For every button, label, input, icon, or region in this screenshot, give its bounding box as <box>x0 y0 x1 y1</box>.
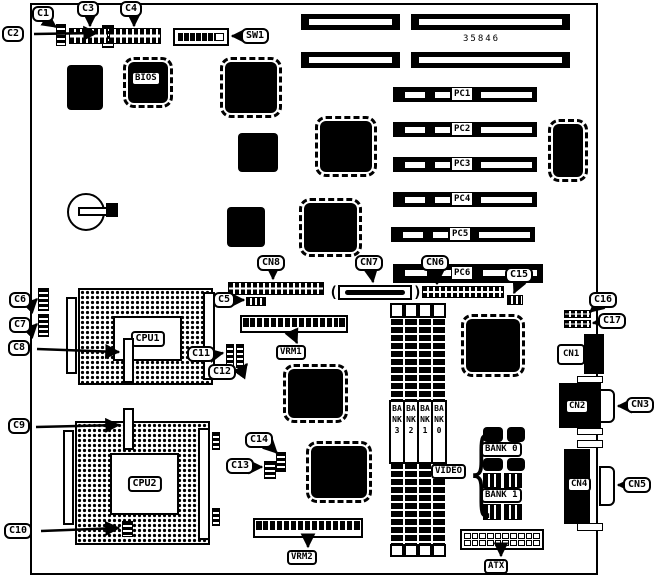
callout-c1: C1 <box>32 6 54 22</box>
motherboard-diagram: BIOS 35846 PC1 PC2 PC3 PC4 PC5 PC6 ( ) <box>0 0 658 579</box>
bank1-label: BANK 1 <box>481 488 522 503</box>
callout-c4: C4 <box>120 1 142 17</box>
callout-c9: C9 <box>8 418 30 434</box>
cn4-label: CN4 <box>567 477 591 492</box>
video-label: VIDEO <box>431 464 466 479</box>
callout-c15: C15 <box>505 267 533 283</box>
callout-c17: C17 <box>598 313 626 329</box>
vrm2-label: VRM2 <box>287 550 317 565</box>
cn1-label: CN1 <box>557 344 585 365</box>
callout-c16: C16 <box>589 292 617 308</box>
callout-cn7: CN7 <box>355 255 383 271</box>
callout-c8: C8 <box>8 340 30 356</box>
callout-sw1: SW1 <box>241 28 269 44</box>
callout-cn5: CN5 <box>623 477 651 493</box>
callout-c14: C14 <box>245 432 273 448</box>
callout-cn8: CN8 <box>257 255 285 271</box>
cn2-label: CN2 <box>565 399 589 414</box>
callout-c3: C3 <box>77 1 99 17</box>
callout-cn6: CN6 <box>421 255 449 271</box>
callout-c11: C11 <box>187 346 215 362</box>
callout-cn3: CN3 <box>626 397 654 413</box>
callout-c10: C10 <box>4 523 32 539</box>
callout-c13: C13 <box>226 458 254 474</box>
atx-label: ATX <box>484 559 508 574</box>
callout-c5: C5 <box>213 292 235 308</box>
bank0-label: BANK 0 <box>481 442 522 457</box>
bios-label: BIOS <box>131 71 161 86</box>
callout-c6: C6 <box>9 292 31 308</box>
callout-c7: C7 <box>9 317 31 333</box>
callout-c12: C12 <box>208 364 236 380</box>
callout-c2: C2 <box>2 26 24 42</box>
vrm1-label: VRM1 <box>276 345 306 360</box>
leader-lines <box>0 0 658 579</box>
